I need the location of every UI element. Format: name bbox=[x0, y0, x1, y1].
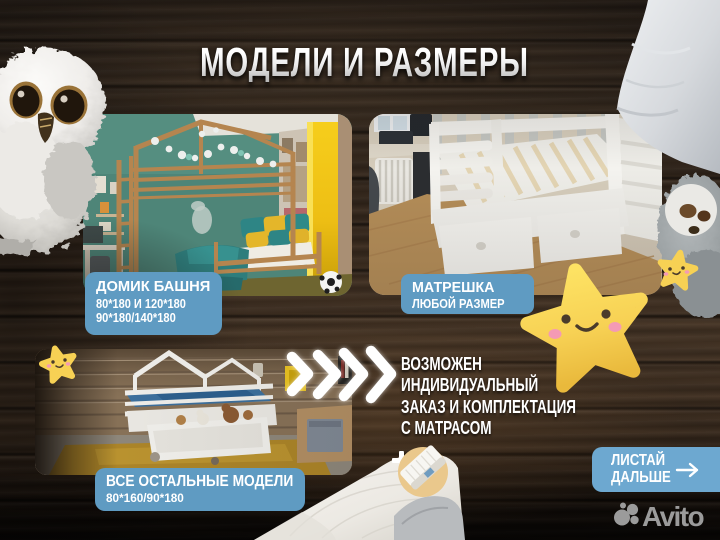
svg-text:Avito: Avito bbox=[642, 501, 704, 532]
